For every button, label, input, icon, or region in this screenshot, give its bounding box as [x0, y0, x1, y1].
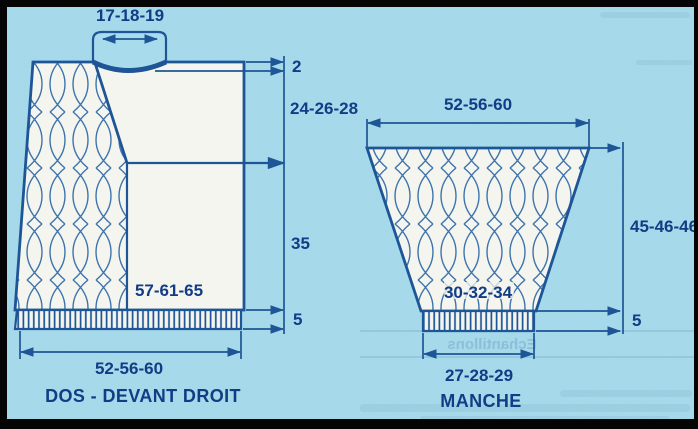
neck-collar: [93, 32, 166, 71]
yoke-depth-label: 24-26-28: [290, 99, 358, 118]
rib-height-label: 5: [293, 310, 302, 329]
bleedthrough-reversed-text: Echantillons: [447, 336, 536, 353]
width-above-rib-label: 57-61-65: [135, 281, 203, 300]
cuff-width-label: 27-28-29: [445, 366, 513, 385]
bottom-width-label: 52-56-60: [95, 359, 163, 378]
cuff-rib-height-label: 5: [632, 311, 641, 330]
body-length-label: 35: [291, 234, 310, 253]
neck-width-label: 17-18-19: [96, 6, 164, 25]
knitting-schematic: Echantillons 17-18-19: [0, 0, 698, 429]
piece-caption: DOS - DEVANT DROIT: [45, 386, 241, 406]
scanned-pattern-page: Echantillons 17-18-19: [0, 0, 698, 429]
bottom-rib-band: [15, 310, 241, 329]
cuff-rib-band: [423, 311, 534, 331]
sleeve-width-above-rib-label: 30-32-34: [444, 283, 513, 302]
sleeve-caption: MANCHE: [440, 391, 521, 411]
neck-drop-label: 2: [292, 57, 301, 76]
sleeve-length-label: 45-46-46: [630, 217, 698, 236]
sleeve-top-width-label: 52-56-60: [444, 95, 512, 114]
